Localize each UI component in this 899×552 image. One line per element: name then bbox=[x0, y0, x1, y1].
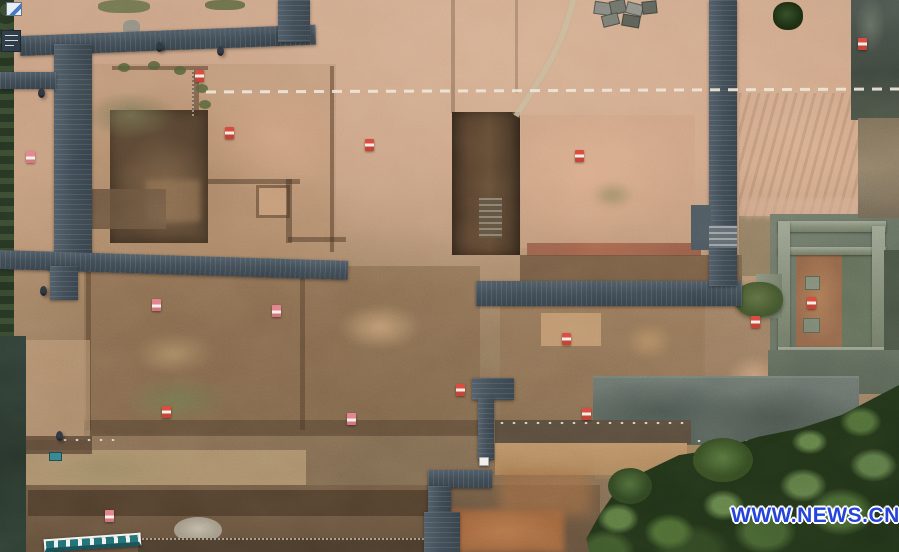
boardwalk-central-platform bbox=[472, 378, 514, 400]
grass-patch bbox=[205, 0, 245, 10]
boardwalk-central-vertical bbox=[478, 398, 494, 460]
survey-marker bbox=[365, 139, 374, 151]
survey-marker bbox=[195, 70, 204, 82]
boardwalk-steps bbox=[709, 226, 737, 248]
grass-patch bbox=[98, 0, 150, 13]
orange-soil-patch bbox=[500, 470, 590, 515]
information-board bbox=[1, 30, 21, 52]
trench-line bbox=[330, 66, 334, 252]
dark-trench-band bbox=[28, 490, 433, 516]
survey-marker bbox=[807, 297, 816, 309]
trench-line bbox=[288, 237, 346, 242]
ruin-wall-north bbox=[778, 221, 886, 232]
survey-marker bbox=[456, 384, 465, 396]
boardwalk-stub bbox=[50, 266, 78, 300]
rock bbox=[601, 12, 620, 28]
boardwalk-east-horizontal bbox=[476, 281, 742, 306]
wall-stone-dots bbox=[497, 420, 687, 426]
tan-dirt-patch bbox=[22, 340, 90, 440]
stone-pillar-base bbox=[803, 318, 820, 333]
boardwalk-west-arm bbox=[0, 72, 56, 89]
platform-moss-tinge bbox=[585, 178, 640, 212]
moss-clump bbox=[148, 61, 160, 70]
survey-marker bbox=[562, 333, 571, 345]
excavation-unit-square bbox=[256, 185, 290, 218]
green-floor-patch bbox=[118, 374, 238, 426]
excavation-pit-small bbox=[84, 189, 166, 229]
moss-patch bbox=[86, 92, 176, 138]
trench-line bbox=[286, 179, 292, 243]
moss-clump bbox=[199, 100, 211, 109]
survey-marker bbox=[347, 413, 356, 425]
boardwalk-widening bbox=[691, 205, 711, 250]
corridor-steps bbox=[479, 198, 502, 238]
small-sign bbox=[6, 2, 22, 16]
orange-soil-patch bbox=[446, 510, 564, 552]
person bbox=[56, 431, 63, 441]
person bbox=[156, 42, 163, 52]
person bbox=[40, 286, 47, 296]
right-edge-dirt bbox=[858, 118, 899, 218]
light-soil-blob bbox=[620, 318, 678, 364]
boardwalk-central-south bbox=[424, 512, 460, 552]
stone-pillar-base bbox=[805, 276, 820, 290]
ruin-courtyard bbox=[796, 253, 842, 349]
trench-edge-shadow bbox=[84, 420, 484, 436]
watermark: WWW.NEWS.CN bbox=[731, 504, 899, 528]
salmon-dirt-patch bbox=[206, 92, 346, 187]
survey-marker bbox=[105, 510, 114, 522]
south-wall-line bbox=[138, 538, 428, 552]
survey-marker bbox=[479, 457, 489, 466]
trench-line bbox=[515, 0, 518, 93]
east-edge-shadow bbox=[884, 250, 899, 358]
fern-clump bbox=[693, 438, 753, 482]
survey-marker bbox=[575, 150, 584, 162]
light-soil-square bbox=[541, 313, 601, 346]
rock bbox=[641, 0, 657, 14]
ruin-wall-cross bbox=[778, 247, 886, 255]
survey-marker bbox=[751, 316, 760, 328]
trench-line bbox=[300, 270, 305, 430]
survey-marker bbox=[858, 38, 867, 50]
white-stone-speckles bbox=[60, 437, 118, 443]
survey-marker bbox=[162, 406, 171, 418]
boardwalk-west-vertical bbox=[54, 44, 92, 256]
dark-bank-bottom-left bbox=[0, 336, 26, 552]
ruin-inner-room bbox=[842, 253, 876, 351]
survey-marker bbox=[582, 408, 591, 420]
aerial-photo: WWW.NEWS.CN bbox=[0, 0, 899, 552]
right-edge-ruins bbox=[851, 0, 899, 120]
trench-line bbox=[451, 0, 455, 113]
boardwalk-top-branch bbox=[278, 0, 310, 42]
survey-marker bbox=[225, 127, 234, 139]
survey-marker bbox=[26, 151, 35, 163]
moss-clump bbox=[118, 63, 130, 72]
teal-bucket bbox=[49, 452, 62, 461]
person bbox=[217, 46, 224, 56]
survey-marker bbox=[152, 299, 161, 311]
bush bbox=[773, 2, 803, 30]
fern-clump bbox=[608, 468, 652, 504]
light-soil-blob bbox=[330, 298, 430, 356]
light-soil-blob bbox=[124, 328, 224, 380]
person bbox=[38, 88, 45, 98]
survey-marker bbox=[272, 305, 281, 317]
rock-pile bbox=[592, 0, 662, 32]
moss-covered-mound bbox=[735, 282, 783, 317]
moss-clump bbox=[174, 66, 186, 75]
rock bbox=[621, 14, 641, 29]
